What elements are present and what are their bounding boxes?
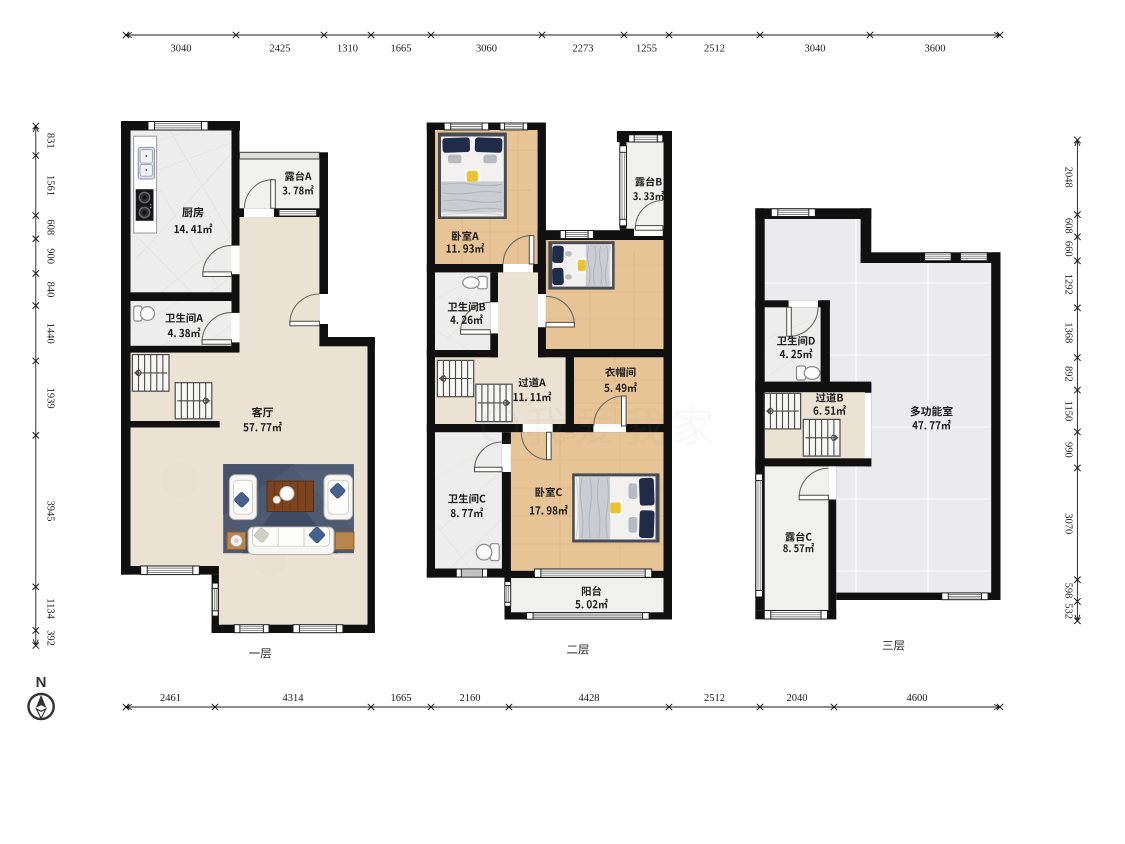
svg-text:2160: 2160 [460, 693, 481, 704]
svg-text:1255: 1255 [636, 44, 657, 55]
svg-text:1561: 1561 [45, 175, 56, 196]
svg-text:1134: 1134 [45, 598, 56, 619]
svg-text:3040: 3040 [805, 44, 826, 55]
svg-text:608: 608 [45, 219, 56, 235]
svg-text:608: 608 [1062, 218, 1073, 234]
svg-text:900: 900 [45, 248, 56, 264]
svg-text:4600: 4600 [907, 693, 928, 704]
svg-text:4314: 4314 [283, 693, 305, 704]
svg-text:2461: 2461 [160, 693, 181, 704]
svg-text:1368: 1368 [1062, 322, 1073, 343]
svg-text:2512: 2512 [704, 44, 725, 55]
svg-text:1440: 1440 [45, 323, 56, 344]
svg-text:1310: 1310 [337, 44, 358, 55]
svg-text:660: 660 [1062, 241, 1073, 257]
svg-text:3945: 3945 [45, 501, 56, 522]
svg-text:3600: 3600 [925, 44, 946, 55]
svg-text:1939: 1939 [45, 388, 56, 409]
svg-text:532: 532 [1062, 603, 1073, 619]
svg-text:1665: 1665 [391, 693, 412, 704]
svg-text:598: 598 [1062, 583, 1073, 599]
svg-text:3060: 3060 [476, 44, 497, 55]
svg-text:3040: 3040 [171, 44, 192, 55]
svg-text:1292: 1292 [1062, 274, 1073, 295]
svg-text:2040: 2040 [787, 693, 808, 704]
svg-text:990: 990 [1062, 442, 1073, 458]
svg-text:892: 892 [1062, 366, 1073, 382]
svg-text:831: 831 [45, 133, 56, 149]
svg-text:2273: 2273 [573, 44, 594, 55]
svg-text:2048: 2048 [1062, 167, 1073, 188]
svg-text:2512: 2512 [704, 693, 725, 704]
svg-text:1150: 1150 [1062, 401, 1073, 422]
svg-text:2425: 2425 [270, 44, 291, 55]
svg-text:840: 840 [45, 282, 56, 298]
svg-text:392: 392 [45, 630, 56, 646]
svg-text:N: N [36, 674, 47, 691]
svg-text:4428: 4428 [579, 693, 600, 704]
svg-text:3070: 3070 [1062, 513, 1073, 534]
svg-text:1665: 1665 [391, 44, 412, 55]
